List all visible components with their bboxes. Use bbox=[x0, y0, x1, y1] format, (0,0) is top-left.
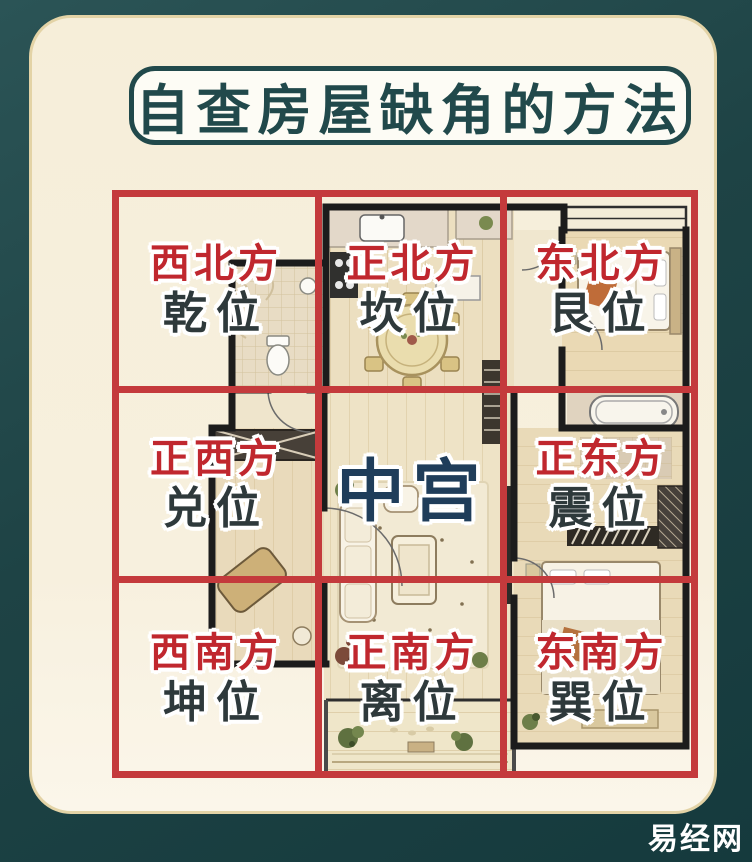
content-card: 自查房屋缺角的方法 bbox=[29, 15, 717, 814]
position-label: 乾位 bbox=[163, 290, 269, 338]
grid-cell-northwest: 西北方 乾位 bbox=[112, 190, 320, 390]
position-label: 坎位 bbox=[360, 290, 466, 338]
position-label: 兑位 bbox=[163, 485, 269, 533]
position-label: 巽位 bbox=[549, 679, 655, 727]
floorplan-grid: 西北方 乾位 正北方 坎位 东北方 艮位 正西方 兑位 中宫 正东方 震位 bbox=[112, 190, 698, 778]
direction-label: 东北方 bbox=[536, 242, 668, 286]
grid-cell-west: 正西方 兑位 bbox=[112, 390, 320, 580]
position-label: 震位 bbox=[549, 485, 655, 533]
grid-cell-east: 正东方 震位 bbox=[505, 390, 698, 580]
direction-label: 东南方 bbox=[536, 631, 668, 675]
grid-cell-south: 正南方 离位 bbox=[320, 580, 505, 778]
grid-cell-southwest: 西南方 坤位 bbox=[112, 580, 320, 778]
page-title: 自查房屋缺角的方法 bbox=[136, 66, 685, 145]
direction-label: 正南方 bbox=[347, 631, 479, 675]
title-box: 自查房屋缺角的方法 bbox=[129, 66, 691, 145]
position-label: 离位 bbox=[360, 679, 466, 727]
grid-cell-center: 中宫 bbox=[320, 390, 505, 580]
center-palace-label: 中宫 bbox=[336, 436, 488, 535]
direction-label: 西北方 bbox=[150, 242, 282, 286]
position-label: 艮位 bbox=[549, 290, 655, 338]
direction-label: 西南方 bbox=[150, 631, 282, 675]
watermark: 易经网 bbox=[648, 814, 744, 858]
grid-cell-north: 正北方 坎位 bbox=[320, 190, 505, 390]
grid-cell-southeast: 东南方 巽位 bbox=[505, 580, 698, 778]
infographic: 自查房屋缺角的方法 bbox=[0, 0, 752, 862]
position-label: 坤位 bbox=[163, 679, 269, 727]
direction-label: 正北方 bbox=[347, 242, 479, 286]
grid-cell-northeast: 东北方 艮位 bbox=[505, 190, 698, 390]
direction-label: 正东方 bbox=[536, 437, 668, 481]
direction-label: 正西方 bbox=[150, 437, 282, 481]
